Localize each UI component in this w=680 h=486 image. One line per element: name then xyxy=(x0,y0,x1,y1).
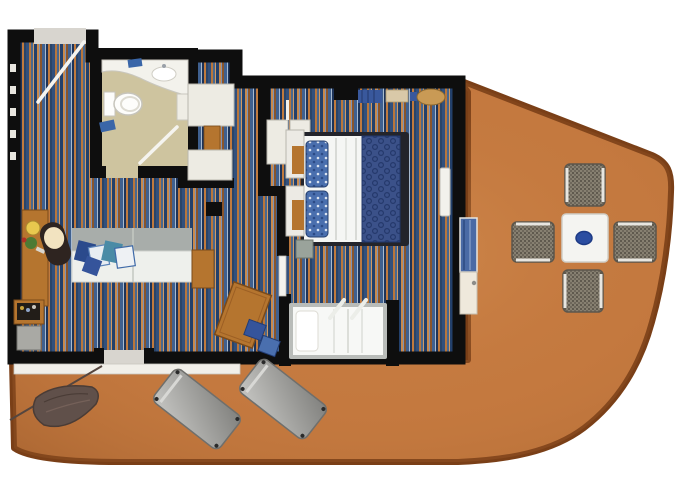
stool-tan xyxy=(417,89,445,105)
nook-closet-bottom xyxy=(188,150,232,180)
desk-lamp xyxy=(26,221,40,235)
wall-bed-nook-right xyxy=(386,300,399,366)
shelf-tan xyxy=(386,90,408,102)
nightstand-2-wood xyxy=(292,200,304,230)
bed-pillow-1 xyxy=(306,141,328,187)
bathroom-shelf xyxy=(177,94,188,120)
single-bed-pillow xyxy=(296,311,318,351)
bedroom-wardrobe-white xyxy=(267,120,288,164)
sink-faucet xyxy=(162,64,166,68)
wall-pillar xyxy=(206,202,222,216)
single-bed xyxy=(289,300,387,359)
bed-pillow-2 xyxy=(306,191,328,237)
sofa-side-table xyxy=(192,250,214,288)
minibar-fridge xyxy=(17,326,41,350)
nightstand-1-wood xyxy=(292,146,304,174)
bedroom-wall-lamp xyxy=(286,100,289,120)
bathroom-sink xyxy=(152,67,176,81)
bathroom xyxy=(90,48,198,178)
bathroom-entry-threshold xyxy=(106,164,138,178)
nook-closet-top xyxy=(188,84,234,126)
bed-duvet xyxy=(362,136,400,242)
sliding-door-glass xyxy=(460,218,477,272)
decor-blue-small xyxy=(410,92,417,101)
floor-plan-canvas xyxy=(0,0,680,486)
window-sill xyxy=(14,364,240,374)
floor-plan-svg xyxy=(0,0,680,486)
balcony-chair-right xyxy=(614,222,656,262)
sliding-door-handle xyxy=(472,281,476,285)
balcony-chair-bottom xyxy=(563,270,603,312)
nook-shelf-wood xyxy=(204,126,220,150)
balcony-chair-left xyxy=(512,222,554,262)
entry-door-threshold xyxy=(34,28,86,44)
bedroom-tv-console xyxy=(296,240,313,258)
bedroom-door-leaf xyxy=(279,256,286,296)
queen-bed xyxy=(286,130,409,258)
desk-plant xyxy=(25,237,37,249)
wall-alcove-notch xyxy=(334,78,358,100)
balcony-door-leaf-inside xyxy=(440,168,450,216)
table-bowl xyxy=(576,232,592,245)
desk-red-item xyxy=(22,238,27,243)
sliding-door-panel xyxy=(460,272,477,314)
sofa-pillow-4 xyxy=(115,246,136,268)
balcony-chair-top xyxy=(565,164,605,206)
